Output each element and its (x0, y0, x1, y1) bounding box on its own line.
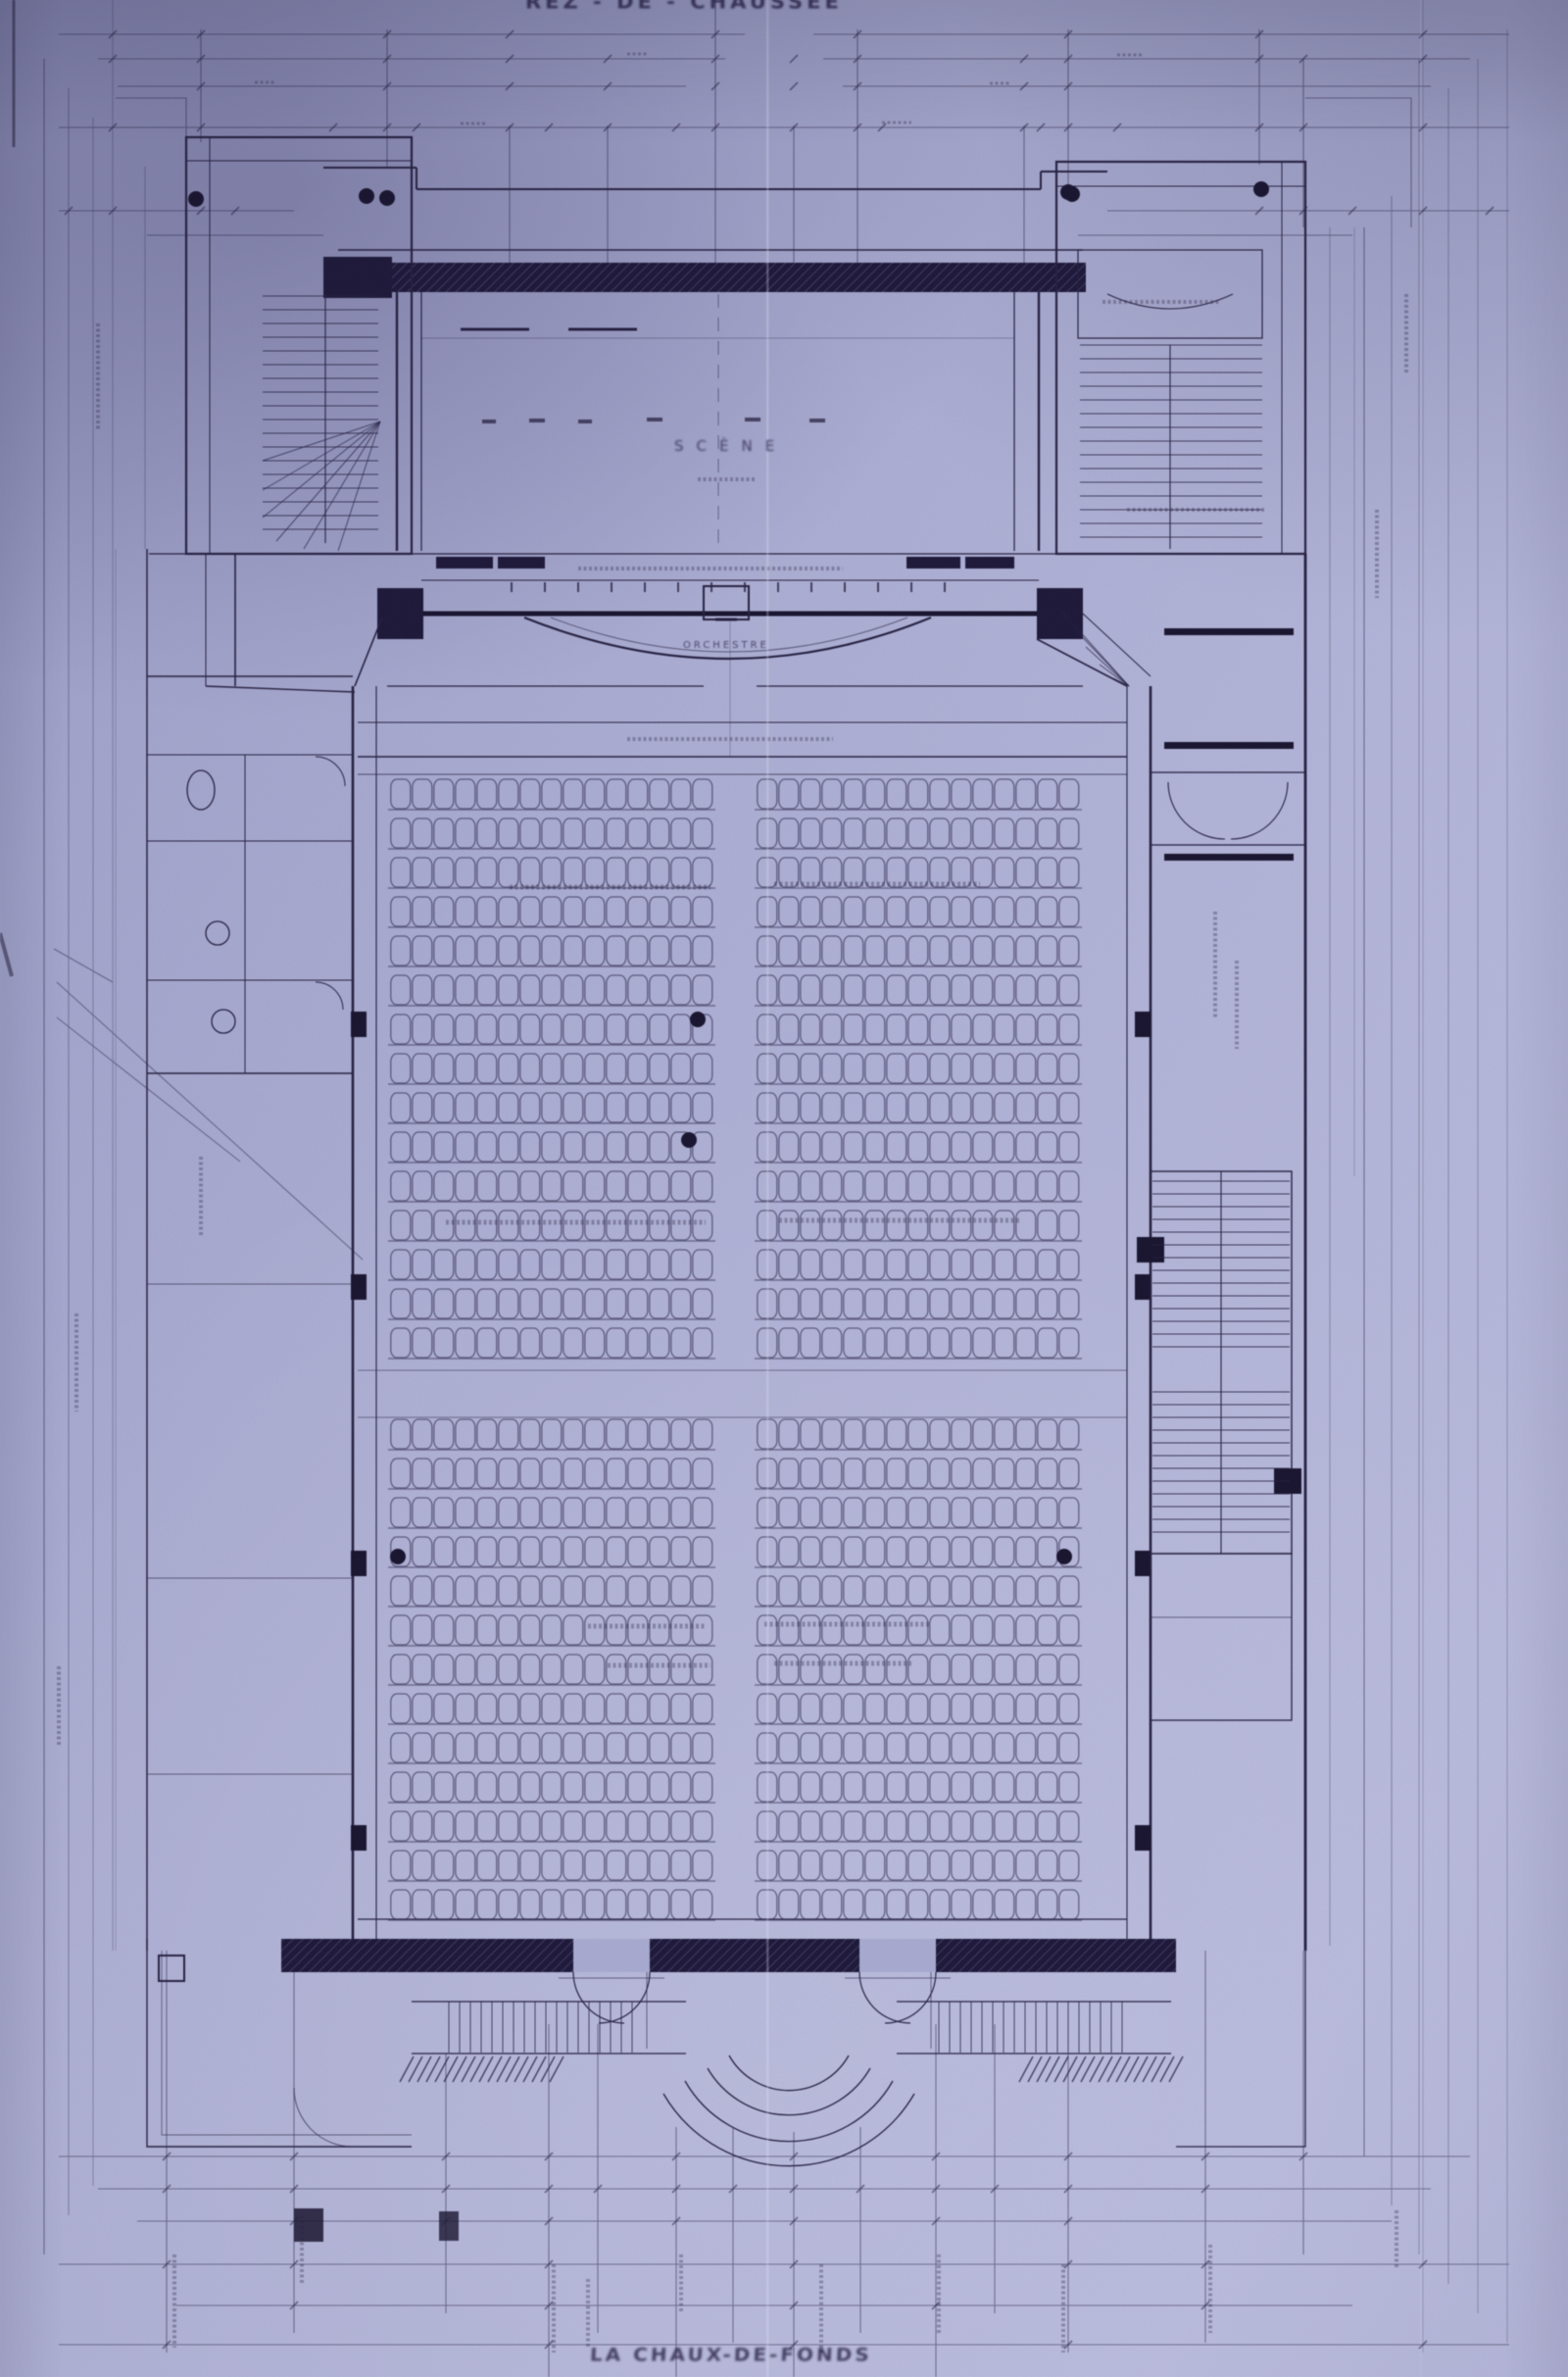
orchestra-pit-label: ORCHESTRE (683, 640, 769, 651)
film-grain (0, 0, 1568, 2377)
stage-label: SCÈNE (674, 437, 787, 455)
sheet-title-bottom: LA CHAUX-DE-FONDS (589, 2344, 872, 2366)
floor-plan-drawing (0, 0, 1568, 2377)
blueprint-photo: REZ - DE - CHAUSSÉE SCÈNE ORCHESTRE LA C… (0, 0, 1568, 2377)
sheet-title-top: REZ - DE - CHAUSSÉE (525, 0, 843, 13)
